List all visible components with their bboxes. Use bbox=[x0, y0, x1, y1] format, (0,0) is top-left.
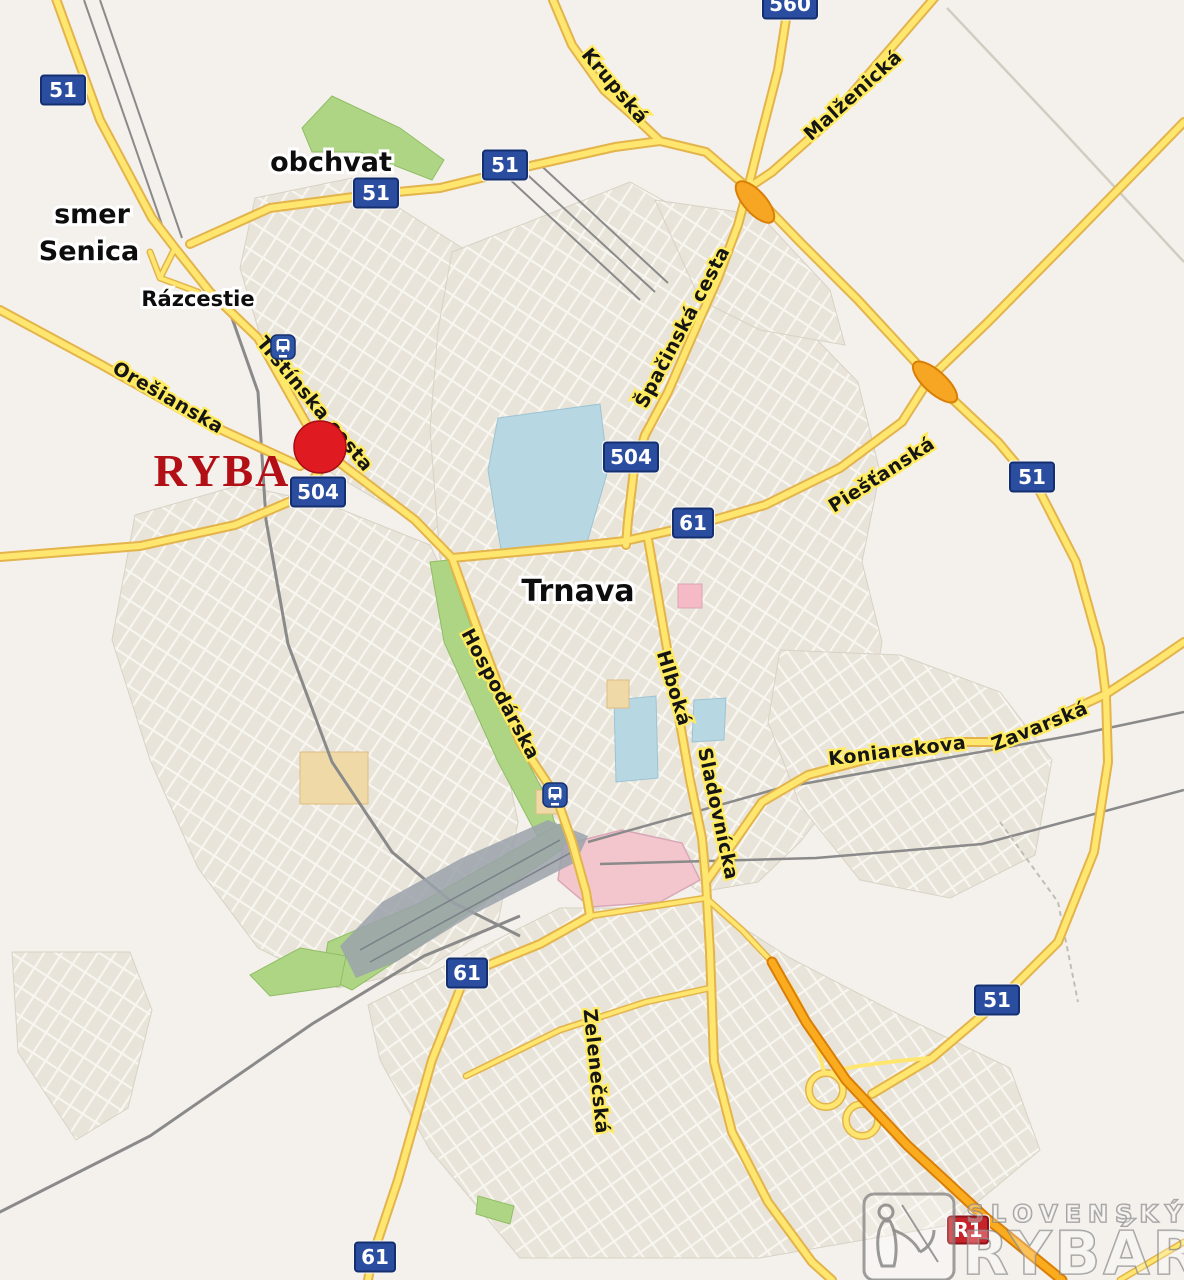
label-trnava: Trnava bbox=[521, 574, 634, 609]
route-shield-504: 504 bbox=[289, 476, 347, 509]
svg-text:560: 560 bbox=[769, 0, 811, 16]
map-canvas[interactable]: Krupská Malženická Špačinská cesta Oreši… bbox=[0, 0, 1184, 1280]
label-senica: Senica bbox=[39, 236, 139, 267]
route-shield-504: 504 bbox=[602, 441, 660, 474]
label-razcestie: Rázcestie bbox=[141, 287, 254, 311]
route-shield-51: 51 bbox=[973, 984, 1021, 1017]
route-shield-560: 560 bbox=[761, 0, 819, 21]
svg-text:51: 51 bbox=[362, 181, 390, 205]
svg-text:51: 51 bbox=[491, 153, 519, 177]
route-shield-51: 51 bbox=[481, 149, 529, 182]
svg-text:504: 504 bbox=[297, 480, 339, 504]
watermark: SLOVENSKÝ RYBÁR bbox=[864, 1194, 1184, 1280]
svg-text:61: 61 bbox=[453, 961, 481, 985]
route-shield-51: 51 bbox=[1008, 461, 1056, 494]
route-shield-51: 51 bbox=[39, 74, 87, 107]
ryba-location-marker[interactable] bbox=[294, 421, 346, 473]
label-obchvat: obchvat bbox=[270, 147, 392, 178]
route-shield-61: 61 bbox=[445, 957, 489, 990]
svg-text:51: 51 bbox=[983, 988, 1011, 1012]
route-shield-51: 51 bbox=[352, 177, 400, 210]
svg-text:51: 51 bbox=[49, 78, 77, 102]
route-shield-61: 61 bbox=[353, 1241, 397, 1274]
trnava-map-svg: Krupská Malženická Špačinská cesta Oreši… bbox=[0, 0, 1184, 1280]
svg-text:504: 504 bbox=[610, 445, 652, 469]
ryba-label: RYBA bbox=[154, 445, 291, 496]
watermark-line2: RYBÁR bbox=[962, 1218, 1184, 1280]
svg-text:61: 61 bbox=[361, 1245, 389, 1269]
svg-text:51: 51 bbox=[1018, 465, 1046, 489]
label-smer: smer bbox=[54, 199, 131, 230]
route-shield-61: 61 bbox=[671, 507, 715, 540]
svg-text:61: 61 bbox=[679, 511, 707, 535]
station-icon bbox=[271, 335, 295, 359]
station-icon bbox=[543, 783, 567, 807]
